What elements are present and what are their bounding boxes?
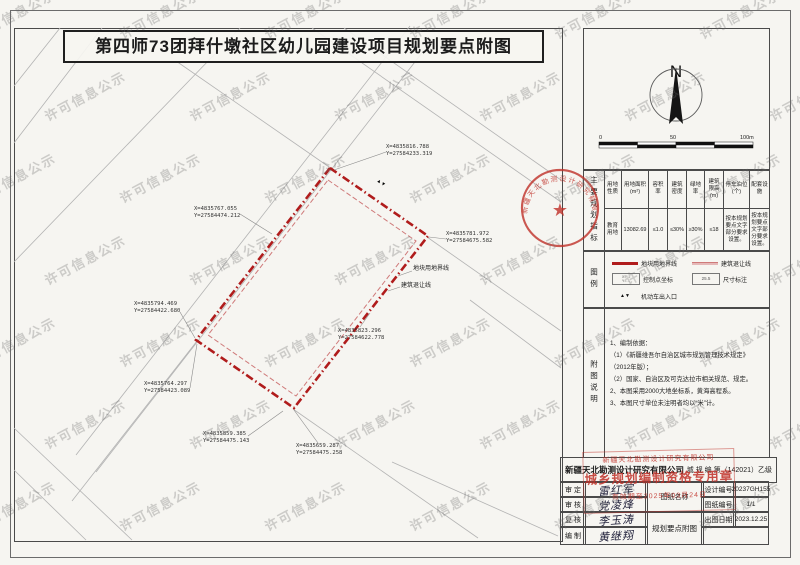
boundary-line-tag: 地块用地界线 xyxy=(413,263,449,272)
round-official-seal: 新疆天北勘测设计研究有限公司 ★ xyxy=(510,158,610,258)
road-lines xyxy=(14,26,561,540)
control-point-label: X=4835816.788Y=27584233.319 xyxy=(386,144,432,158)
seal-star-icon: ★ xyxy=(552,200,568,220)
drawing-title: 第四师73团拜什墩社区幼儿园建设项目规划要点附图 xyxy=(63,30,544,63)
setback-line-tag: 建筑退让线 xyxy=(401,280,431,289)
stamp-title: 城乡规划编制资格专用章 xyxy=(584,465,734,488)
control-point-label: X=4835823.296Y=27584622.778 xyxy=(338,328,384,342)
control-point-label: X=4835794.469Y=27584422.680 xyxy=(134,301,180,315)
control-point-label: X=4835659.287Y=27584475.258 xyxy=(296,443,342,457)
scanned-plan-sheet: 许可信息公示许可信息公示许可信息公示许可信息公示许可信息公示许可信息公示许可信息… xyxy=(0,0,800,565)
stamp-company: 新疆天北勘测设计研究有限公司 xyxy=(583,452,733,466)
control-point-label: X=4835767.055Y=27584474.212 xyxy=(194,206,240,220)
control-point-label: X=4835764.297Y=27584423.089 xyxy=(144,381,190,395)
control-point-label: X=4835859.385Y=27584475.143 xyxy=(203,431,249,445)
certificate-stamp: 新疆天北勘测设计研究有限公司 城乡规划编制资格专用章 有效期至2025年03月2… xyxy=(582,448,736,514)
stamp-validity: 有效期至2025年03月24日 xyxy=(584,489,734,503)
site-boundary-line xyxy=(196,168,428,408)
coordinate-leaders xyxy=(180,152,446,443)
control-point-label: X=4835781.972Y=27584675.582 xyxy=(446,231,492,245)
setback-tag-leader xyxy=(388,287,400,291)
